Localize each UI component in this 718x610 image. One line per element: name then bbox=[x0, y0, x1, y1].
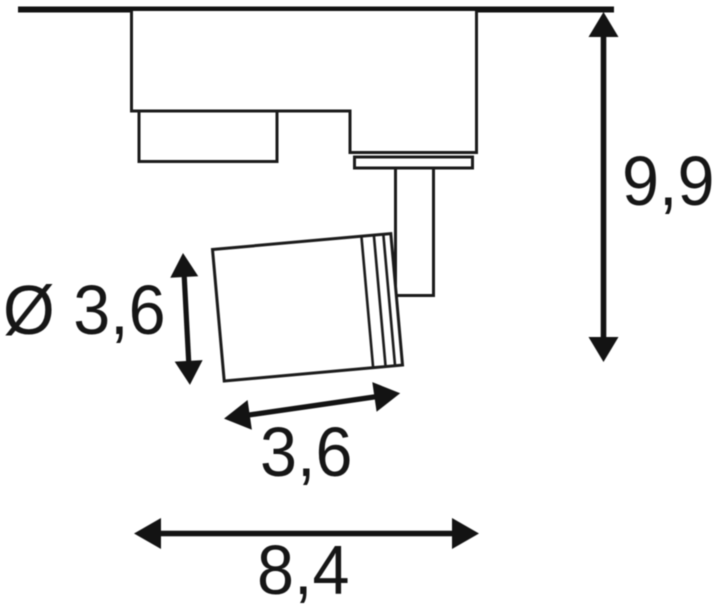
svg-text:8,4: 8,4 bbox=[257, 531, 349, 609]
svg-text:3,6: 3,6 bbox=[260, 413, 352, 491]
svg-text:Ø 3,6: Ø 3,6 bbox=[3, 271, 166, 349]
svg-text:9,9: 9,9 bbox=[622, 142, 714, 220]
